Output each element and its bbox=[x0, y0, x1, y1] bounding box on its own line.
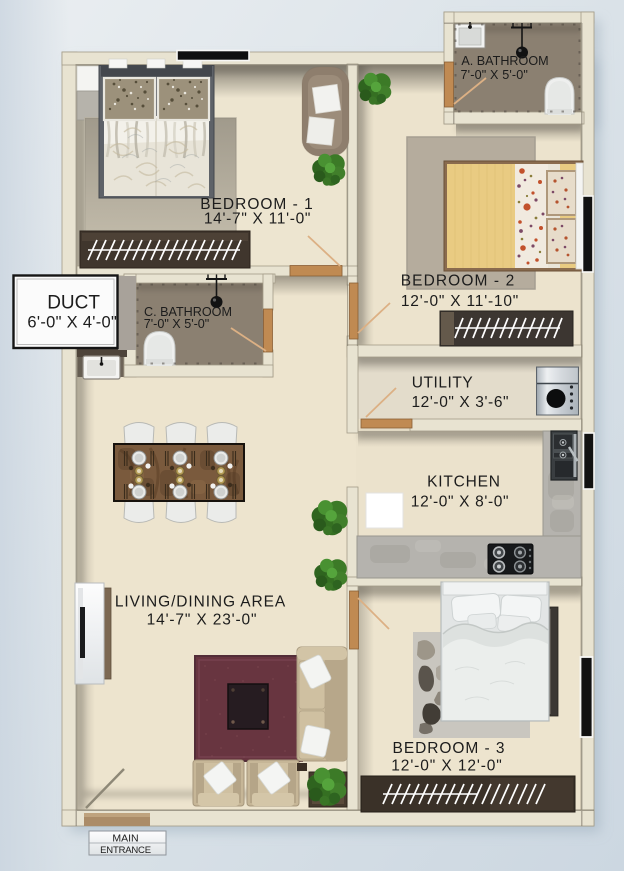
svg-text:12'-0" X 11'-10": 12'-0" X 11'-10" bbox=[401, 293, 519, 310]
svg-text:KITCHEN: KITCHEN bbox=[427, 473, 501, 490]
svg-text:12'-0" X 3'-6": 12'-0" X 3'-6" bbox=[411, 394, 509, 411]
svg-text:6'-0" X 4'-0": 6'-0" X 4'-0" bbox=[27, 314, 117, 332]
svg-text:14'-7" X 11'-0": 14'-7" X 11'-0" bbox=[204, 210, 311, 227]
svg-text:LIVING/DINING AREA: LIVING/DINING AREA bbox=[115, 594, 286, 611]
svg-text:14'-7" X 23'-0": 14'-7" X 23'-0" bbox=[147, 611, 258, 628]
svg-text:7'-0" X 5'-0": 7'-0" X 5'-0" bbox=[461, 68, 529, 82]
svg-text:12'-0" X 8'-0": 12'-0" X 8'-0" bbox=[411, 494, 509, 511]
svg-text:ENTRANCE: ENTRANCE bbox=[100, 845, 151, 856]
svg-text:MAIN: MAIN bbox=[112, 832, 138, 844]
svg-text:BEDROOM - 3: BEDROOM - 3 bbox=[393, 740, 506, 757]
svg-text:DUCT: DUCT bbox=[47, 293, 100, 314]
svg-text:A. BATHROOM: A. BATHROOM bbox=[461, 54, 548, 68]
svg-text:7'-0" X 5'-0": 7'-0" X 5'-0" bbox=[144, 317, 210, 331]
svg-text:BEDROOM - 2: BEDROOM - 2 bbox=[401, 273, 516, 290]
svg-text:UTILITY: UTILITY bbox=[412, 374, 474, 391]
svg-text:12'-0" X 12'-0": 12'-0" X 12'-0" bbox=[391, 758, 502, 775]
